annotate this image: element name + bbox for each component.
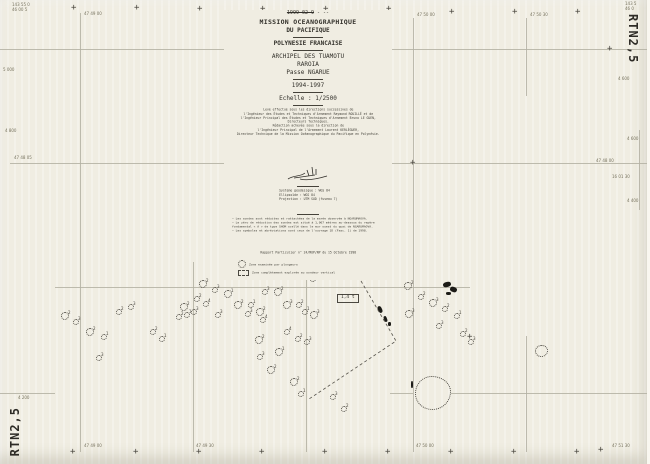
separator-rule bbox=[293, 92, 323, 93]
edge-coordinate-label: 4 200 bbox=[18, 396, 29, 400]
boxed-annotation: 1,4 t bbox=[337, 294, 359, 303]
edge-coordinate-label: 47 49 00 bbox=[84, 444, 102, 448]
coral-head-depth-label: 2 bbox=[199, 294, 202, 298]
grid-cross: + bbox=[322, 447, 327, 457]
grid-cross: + bbox=[511, 447, 516, 457]
edge-coordinate-label: 4 800 bbox=[5, 129, 16, 133]
coral-head-depth-label: 1 bbox=[231, 289, 234, 293]
coral-head-depth-label: 2 bbox=[241, 300, 244, 304]
geodesy-block: Système géodésique : WGS 84 Ellipsoïde :… bbox=[224, 189, 392, 201]
grid-line-vertical bbox=[193, 262, 194, 452]
coral-head-depth-label: 3 bbox=[196, 307, 199, 311]
coral-head-depth-label: 3 bbox=[101, 353, 104, 357]
grid-line-vertical bbox=[80, 13, 81, 452]
edge-coordinate-label: 4 600 bbox=[618, 77, 629, 81]
grid-cross: + bbox=[448, 447, 453, 457]
coral-head-depth-label: 1 bbox=[307, 307, 310, 311]
edge-coordinate-label: 47 49 00 bbox=[84, 12, 102, 16]
edge-coordinate-label: 47 49 30 bbox=[196, 444, 214, 448]
grid-cross: + bbox=[71, 3, 76, 13]
edge-coordinate-label: 47 51 30 bbox=[612, 444, 630, 448]
grid-cross: + bbox=[134, 3, 139, 13]
coral-head-depth-label: 3 bbox=[335, 392, 338, 396]
separator-rule bbox=[293, 79, 323, 80]
edge-coordinate-label: 47 50 00 bbox=[416, 444, 434, 448]
grid-line-vertical bbox=[526, 336, 527, 452]
coral-head-depth-label: 2 bbox=[68, 311, 71, 315]
coral-head-depth-label: 4 bbox=[265, 315, 268, 319]
coral-head-depth-label: 2 bbox=[262, 335, 265, 339]
coral-patch-outline bbox=[415, 376, 451, 410]
coral-head-depth-label: 2 bbox=[301, 300, 304, 304]
coral-head-depth-label: 3 bbox=[133, 302, 136, 306]
edge-coordinate-label: 47 48 00 bbox=[596, 159, 614, 163]
survey-notes: — Les sondes sont réduites et rattachées… bbox=[232, 217, 400, 233]
separator-rule bbox=[293, 105, 323, 106]
grid-cross: + bbox=[133, 447, 138, 457]
grid-cross: + bbox=[385, 447, 390, 457]
diver-zone-symbol bbox=[238, 260, 246, 268]
coral-head-depth-label: 1 bbox=[253, 300, 256, 304]
coral-head-depth-label: 3 bbox=[220, 310, 223, 314]
grid-cross: + bbox=[410, 158, 415, 168]
coral-head-depth-label: 2 bbox=[155, 327, 158, 331]
coral-head-depth-label: 4 bbox=[289, 327, 292, 331]
coral-head-depth-label: 1 bbox=[303, 389, 306, 393]
edge-coordinate-label: 47 50 30 bbox=[530, 13, 548, 17]
rock-islet bbox=[388, 322, 391, 326]
grid-cross: + bbox=[70, 447, 75, 457]
coral-head-depth-label: 1 bbox=[164, 334, 167, 338]
rock-islet bbox=[446, 292, 451, 295]
coral-head-depth-label: 2 bbox=[346, 404, 349, 408]
separator-rule bbox=[297, 186, 319, 187]
coral-head-depth-label: 3 bbox=[309, 337, 312, 341]
coral-head-depth-label: 2 bbox=[187, 302, 190, 306]
legend-label: Zone examinée par plongeurs bbox=[249, 262, 298, 266]
survey-reference-date: 1999-02-9 - -- bbox=[224, 10, 392, 16]
coral-head-depth-label: 1 bbox=[189, 310, 192, 314]
coral-head-depth-label: 2 bbox=[274, 365, 277, 369]
coral-head-depth-label: 2 bbox=[206, 279, 209, 283]
grid-line-horizontal bbox=[451, 393, 650, 394]
coral-head-depth-label: 3 bbox=[317, 310, 320, 314]
edge-coordinate-label: 46 0 bbox=[625, 7, 634, 11]
rock-islet bbox=[411, 381, 413, 388]
separator-rule bbox=[293, 50, 323, 51]
survey-years: 1994-1997 bbox=[224, 82, 392, 89]
grid-cross: + bbox=[197, 4, 202, 14]
grid-cross: + bbox=[598, 445, 603, 455]
legend-label: Zone complètement explorée au sondeur ve… bbox=[252, 271, 335, 275]
grid-cross: + bbox=[512, 7, 517, 17]
sheet-code-top-right: RTN2,5 bbox=[626, 14, 640, 63]
coral-head-depth-label: 1 bbox=[106, 332, 109, 336]
coral-head-depth-label: 3 bbox=[262, 352, 265, 356]
coral-head-depth-label: 3 bbox=[267, 287, 270, 291]
scale-label: Echelle : 1/2500 bbox=[224, 95, 392, 102]
territory-name: POLYNESIE FRANCAISE bbox=[224, 40, 392, 47]
edge-coordinate-label: 4 600 bbox=[627, 137, 638, 141]
sounder-zone-symbol bbox=[238, 270, 249, 276]
grid-cross: + bbox=[607, 44, 612, 54]
edge-coordinate-label: 4 400 bbox=[627, 199, 638, 203]
chart-sheet: +++++++++++++++++++++++143 55 046 00 547… bbox=[0, 0, 650, 464]
title-block: 1999-02-9 - -- MISSION OCEANOGRAPHIQUE D… bbox=[224, 10, 392, 280]
atoll-name: RAROIA bbox=[224, 61, 392, 68]
coral-head-depth-label: 2 bbox=[297, 377, 300, 381]
grid-line-vertical bbox=[639, 130, 640, 210]
grid-cross: + bbox=[196, 447, 201, 457]
coral-head-depth-label: 2 bbox=[93, 327, 96, 331]
coral-head-depth-label: 3 bbox=[78, 317, 81, 321]
archipelago-name: ARCHIPEL DES TUAMOTU bbox=[224, 53, 392, 60]
coral-head-depth-label: 2 bbox=[121, 307, 124, 311]
grid-cross: + bbox=[574, 447, 579, 457]
grid-line-vertical bbox=[526, 18, 527, 96]
coral-head-depth-label: 2 bbox=[423, 292, 426, 296]
coral-head-depth-label: 1 bbox=[459, 311, 462, 315]
coral-patch-outline bbox=[535, 345, 548, 357]
attribution-text: Levé effectué sous les directions succes… bbox=[224, 108, 392, 136]
edge-coordinate-label: 47 48 05 bbox=[14, 156, 32, 160]
organization-name-line2: DU PACIFIQUE bbox=[224, 27, 392, 34]
grid-cross: + bbox=[259, 447, 264, 457]
grid-cross: + bbox=[449, 7, 454, 17]
sheet-code-bottom-left: RTN2,5 bbox=[8, 407, 22, 456]
grid-line-vertical bbox=[306, 262, 307, 452]
coral-head-depth-label: 1 bbox=[282, 347, 285, 351]
coral-head-depth-label: 2 bbox=[465, 329, 468, 333]
grid-line-horizontal bbox=[0, 393, 55, 394]
report-reference: Rapport Particulier n° 24/MOP/NP du 15 O… bbox=[224, 251, 392, 255]
separator-rule bbox=[293, 37, 323, 38]
edge-coordinate-label: 5 000 bbox=[3, 68, 14, 72]
coral-head-depth-label: 2 bbox=[411, 281, 414, 285]
rock-islet bbox=[377, 305, 384, 313]
grid-line-horizontal bbox=[390, 393, 413, 394]
coral-head-depth-label: 3 bbox=[290, 300, 293, 304]
coral-head-depth-label: 2 bbox=[447, 304, 450, 308]
edge-coordinate-label: 47 50 00 bbox=[417, 13, 435, 17]
coral-head-depth-label: 2 bbox=[181, 312, 184, 316]
coral-head-depth-label: 3 bbox=[473, 337, 476, 341]
coral-head-depth-label: 2 bbox=[300, 334, 303, 338]
pass-name: Passe NGARUE bbox=[224, 69, 392, 76]
coral-head-depth-label: 3 bbox=[412, 309, 415, 313]
grid-cross: + bbox=[575, 7, 580, 17]
edge-coordinate-label: 16 01 30 bbox=[612, 175, 630, 179]
edge-coordinate-label: 46 00 5 bbox=[12, 8, 27, 12]
legend-item-sounder: Zone complètement explorée au sondeur ve… bbox=[238, 269, 392, 276]
coral-head-depth-label: 2 bbox=[281, 287, 284, 291]
organization-name-line1: MISSION OCEANOGRAPHIQUE bbox=[224, 18, 392, 26]
coral-head-depth-label: 3 bbox=[441, 321, 444, 325]
grid-line-vertical bbox=[413, 18, 414, 452]
separator-rule bbox=[297, 214, 319, 215]
coral-head-depth-label: 3 bbox=[436, 298, 439, 302]
coral-head-depth-label: 3 bbox=[217, 285, 220, 289]
rock-islet bbox=[383, 316, 388, 323]
coral-head-depth-label: 4 bbox=[208, 299, 211, 303]
coral-head-depth-label: 2 bbox=[263, 307, 266, 311]
signature-mark bbox=[285, 164, 331, 184]
coral-head-depth-label: 3 bbox=[250, 309, 253, 313]
legend-item-divers: Zone examinée par plongeurs bbox=[238, 260, 392, 268]
